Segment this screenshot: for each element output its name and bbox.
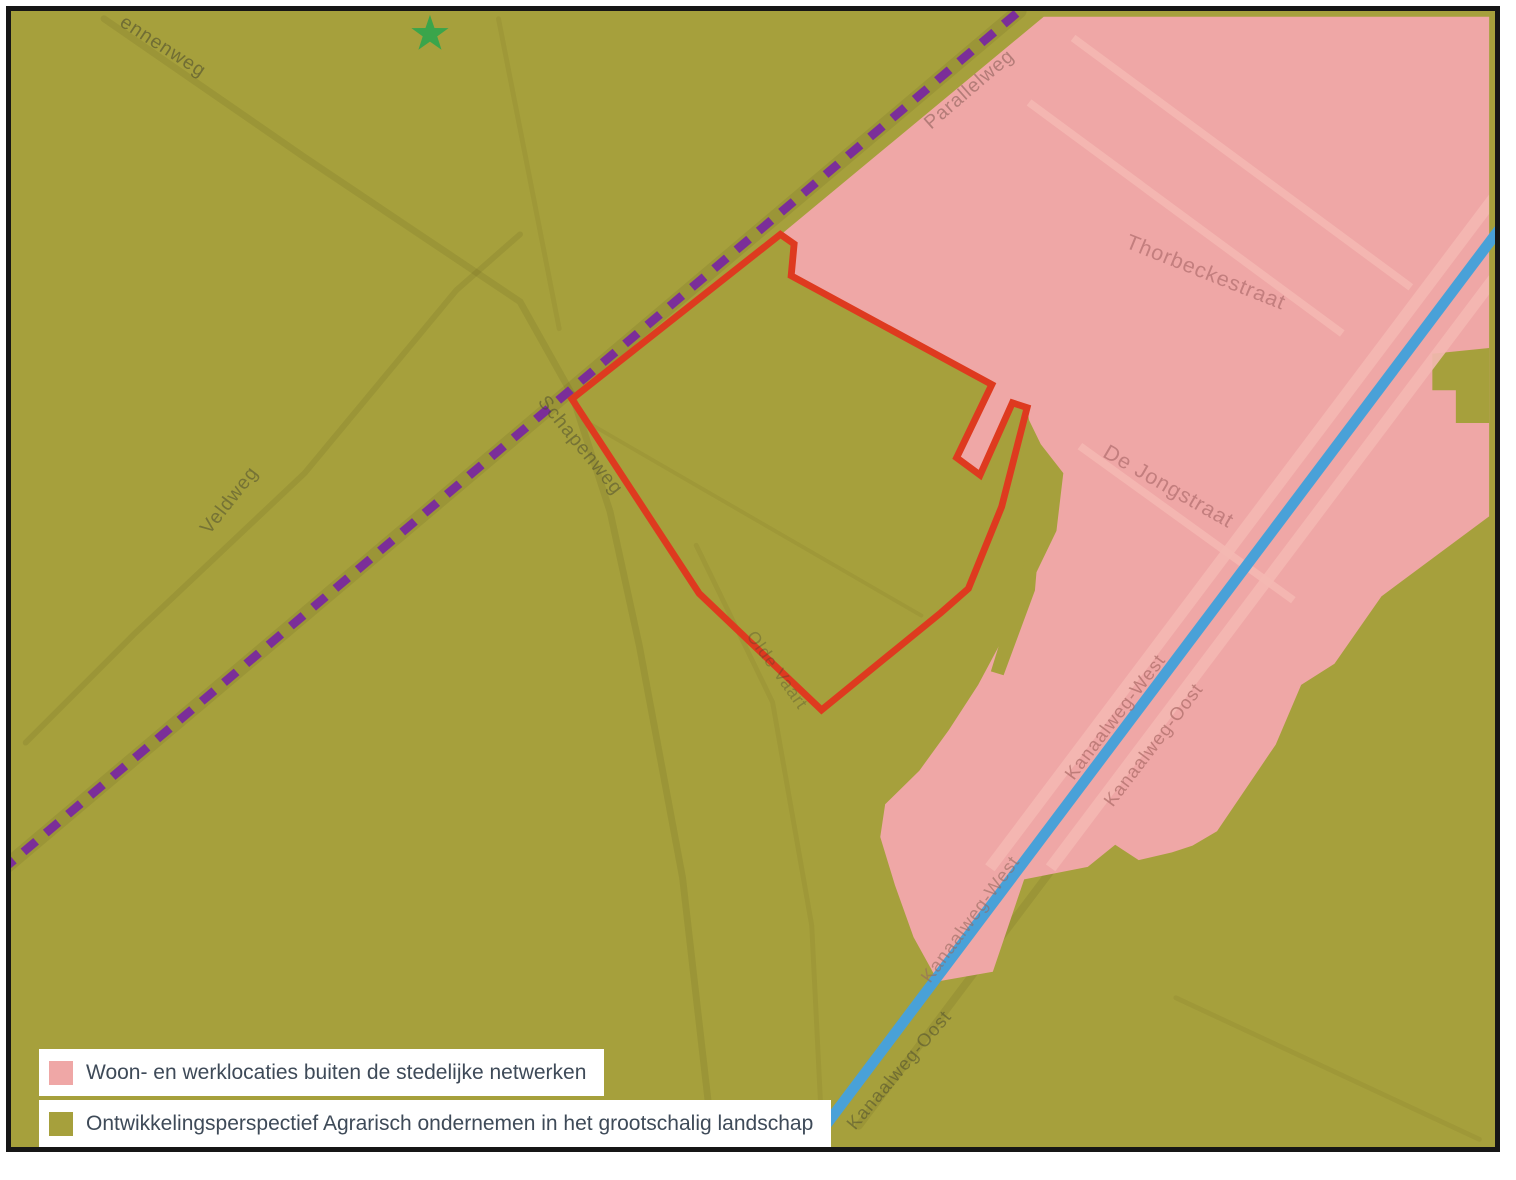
legend-item-agricultural: Ontwikkelingsperspectief Agrarisch onder… xyxy=(39,1100,831,1147)
legend-item-residential: Woon- en werklocaties buiten de stedelij… xyxy=(39,1049,604,1096)
map-layers: ennenweg Parallelweg Thorbeckestraat De … xyxy=(11,11,1495,1147)
map-canvas[interactable]: ennenweg Parallelweg Thorbeckestraat De … xyxy=(6,6,1500,1152)
agricultural-zone-swatch xyxy=(49,1112,73,1136)
legend-label-residential: Woon- en werklocaties buiten de stedelij… xyxy=(86,1061,586,1085)
legend: Woon- en werklocaties buiten de stedelij… xyxy=(39,1049,831,1151)
residential-zone-swatch xyxy=(49,1061,73,1085)
screenshot-page: ennenweg Parallelweg Thorbeckestraat De … xyxy=(0,0,1516,1180)
legend-label-agricultural: Ontwikkelingsperspectief Agrarisch onder… xyxy=(86,1112,813,1136)
